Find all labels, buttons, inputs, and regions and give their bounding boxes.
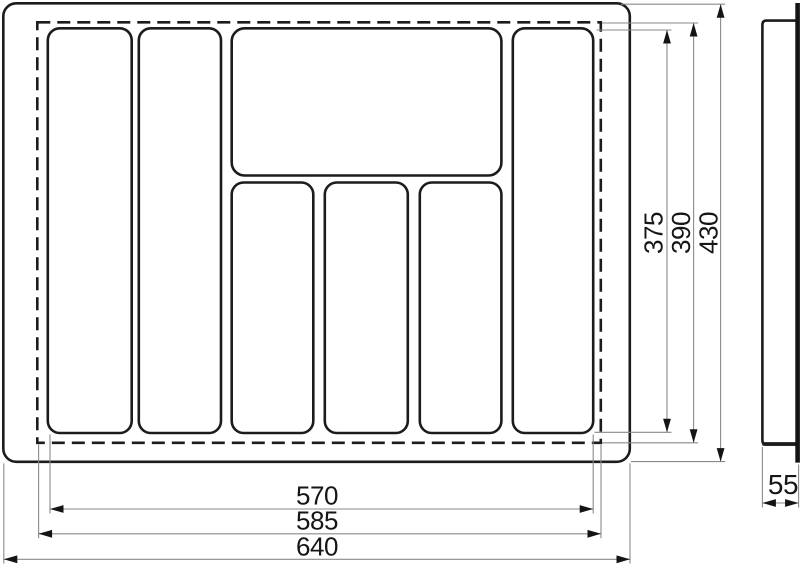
compartment-middle-1	[232, 183, 314, 434]
dim-390-label: 390	[666, 212, 696, 254]
tray-plan-view	[3, 3, 630, 462]
tray-trim-boundary-dashed	[37, 22, 601, 443]
dim-585-arrow-left	[39, 530, 53, 538]
cutlery-tray-technical-drawing: 375 390 430 570	[0, 0, 800, 564]
side-view-outline	[762, 21, 799, 445]
compartment-right	[513, 28, 593, 433]
dim-390-arrow-up	[690, 23, 698, 37]
dim-570-arrow-left	[50, 505, 64, 513]
dim-390-arrow-down	[690, 429, 698, 443]
tray-side-view	[762, 3, 799, 463]
dim-570-arrow-right	[580, 505, 594, 513]
dim-55-label: 55	[768, 469, 798, 500]
dim-55-arrow-right	[785, 499, 799, 507]
dim-375-arrow-down	[663, 419, 671, 433]
compartment-left-2	[139, 28, 221, 433]
dim-55-arrow-left	[762, 499, 776, 507]
dim-430-arrow-down	[717, 448, 725, 462]
dim-430-arrow-up	[717, 4, 725, 18]
dimension-375: 375	[595, 30, 672, 432]
compartment-middle-2	[325, 183, 408, 434]
dim-640-label: 640	[296, 532, 338, 562]
drawing-canvas: 375 390 430 570	[0, 0, 800, 564]
tray-outer-outline	[3, 3, 630, 462]
dim-640-arrow-left	[4, 555, 17, 563]
compartment-top-wide	[232, 28, 502, 175]
dim-430-label: 430	[693, 212, 723, 254]
compartment-left-1	[48, 28, 132, 433]
dim-375-label: 375	[639, 212, 669, 254]
dimension-570: 570	[50, 435, 593, 514]
dim-585-arrow-right	[588, 530, 602, 538]
dim-640-arrow-right	[617, 555, 631, 563]
dimension-55: 55	[762, 447, 798, 508]
dim-375-arrow-up	[663, 30, 671, 44]
compartment-middle-3	[420, 183, 502, 434]
